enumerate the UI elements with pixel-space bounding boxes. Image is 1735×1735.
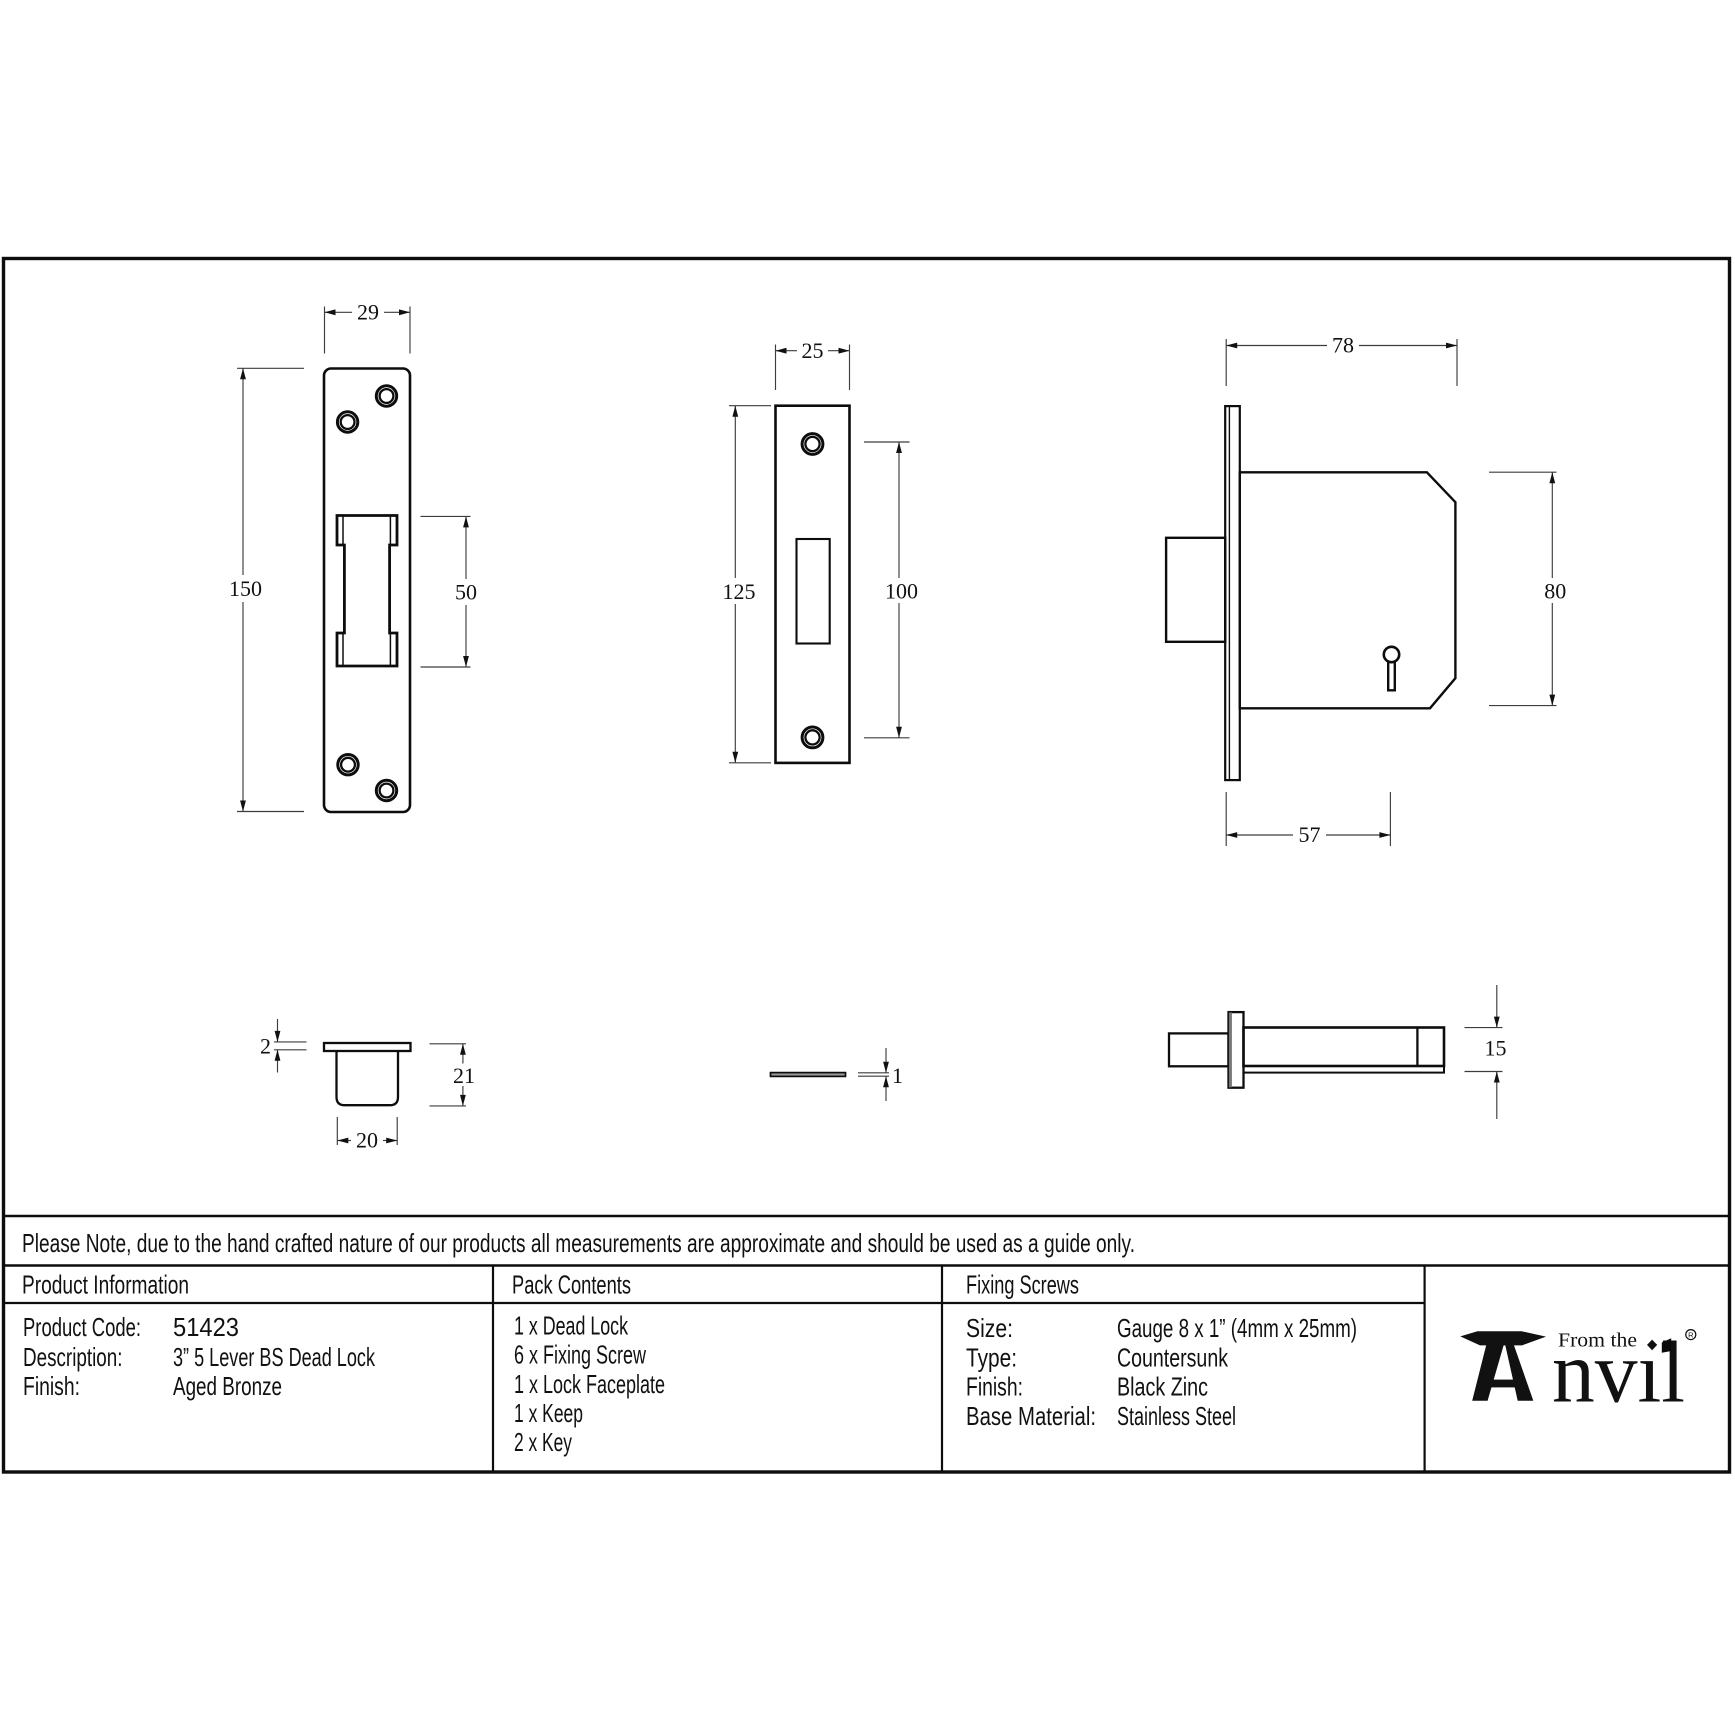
svg-text:Countersunk: Countersunk [1117,1343,1229,1373]
svg-text:78: 78 [1332,333,1354,358]
svg-text:Size:: Size: [966,1313,1013,1343]
svg-text:Please Note, due to the hand c: Please Note, due to the hand crafted nat… [22,1228,1135,1258]
svg-text:Description:: Description: [23,1342,123,1372]
svg-text:Product Code:: Product Code: [23,1312,141,1342]
svg-text:Stainless Steel: Stainless Steel [1117,1401,1236,1431]
svg-text:Black Zinc: Black Zinc [1117,1372,1208,1402]
svg-text:80: 80 [1544,578,1566,603]
svg-text:R: R [1688,1331,1694,1340]
svg-text:2 x Key: 2 x Key [514,1427,572,1457]
svg-text:21: 21 [453,1063,475,1088]
svg-text:15: 15 [1485,1036,1507,1061]
svg-text:29: 29 [357,300,379,325]
svg-text:50: 50 [455,579,477,604]
svg-text:100: 100 [885,578,918,603]
svg-text:Pack Contents: Pack Contents [512,1270,631,1300]
svg-text:1 x Dead Lock: 1 x Dead Lock [514,1311,629,1341]
svg-text:2: 2 [260,1033,271,1058]
svg-text:1: 1 [892,1063,903,1088]
svg-text:Finish:: Finish: [23,1371,80,1401]
svg-text:Aged Bronze: Aged Bronze [173,1371,282,1401]
svg-text:125: 125 [723,579,756,604]
svg-text:Finish:: Finish: [966,1372,1023,1402]
svg-text:51423: 51423 [173,1312,239,1342]
svg-text:Type:: Type: [966,1343,1017,1373]
svg-text:57: 57 [1299,822,1321,847]
svg-text:1 x Lock Faceplate: 1 x Lock Faceplate [514,1369,665,1399]
svg-text:6 x Fixing Screw: 6 x Fixing Screw [514,1340,646,1370]
svg-text:20: 20 [356,1128,378,1153]
svg-text:3” 5 Lever BS Dead Lock: 3” 5 Lever BS Dead Lock [173,1342,376,1372]
svg-text:150: 150 [229,576,262,601]
svg-text:Fixing Screws: Fixing Screws [966,1270,1079,1300]
svg-text:Base Material:: Base Material: [966,1401,1096,1431]
svg-text:25: 25 [802,338,824,363]
svg-text:Product Information: Product Information [22,1270,189,1300]
svg-text:Gauge 8 x 1” (4mm x 25mm): Gauge 8 x 1” (4mm x 25mm) [1117,1313,1357,1343]
svg-text:1 x Keep: 1 x Keep [514,1398,583,1428]
svg-text:From the: From the [1558,1330,1637,1352]
